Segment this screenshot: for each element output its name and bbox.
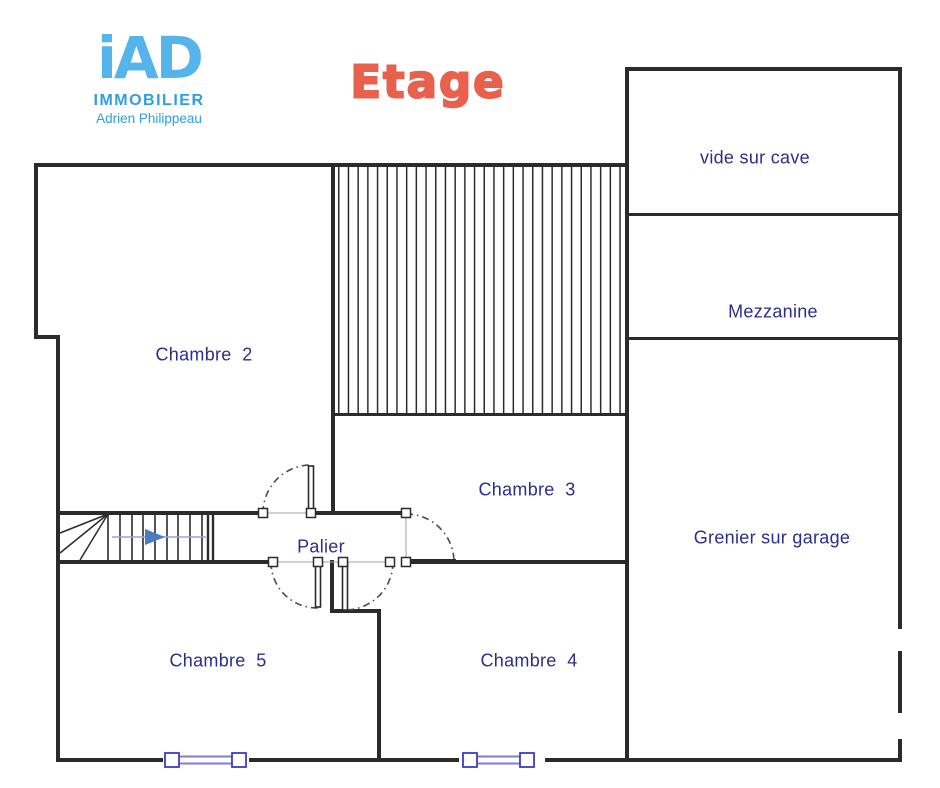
window-chambre5 (165, 753, 179, 767)
door-arc-chambre3 (406, 514, 454, 562)
door-leaf-chambre5-left (316, 562, 321, 607)
floor-plan-drawing (0, 0, 940, 788)
floor-plan-page: iAD IMMOBILIER Adrien Philippeau Etage (0, 0, 940, 788)
stair-direction-arrow-icon (112, 529, 206, 545)
room-label-grenier-sur-garage: Grenier sur garage (694, 528, 850, 549)
room-label-chambre-5: Chambre 5 (169, 651, 266, 672)
room-label-chambre-2: Chambre 2 (155, 345, 252, 366)
window-chambre4 (463, 753, 477, 767)
room-label-palier: Palier (297, 537, 345, 558)
door-arc-chambre2 (263, 465, 311, 513)
door-leaf-chambre3-closed (406, 559, 456, 564)
hatched-area (335, 167, 625, 413)
door-arc-chambre5-right (345, 562, 393, 610)
room-label-chambre-4: Chambre 4 (480, 651, 577, 672)
door-leaf-chambre5-right (343, 562, 348, 610)
room-label-vide-sur-cave: vide sur cave (700, 148, 810, 169)
room-label-mezzanine: Mezzanine (728, 302, 818, 323)
room-label-chambre-3: Chambre 3 (478, 480, 575, 501)
staircase (60, 513, 213, 562)
door-leaf-chambre2 (309, 466, 314, 511)
door-arc-chambre5-left (271, 562, 318, 608)
doors (259, 465, 457, 610)
